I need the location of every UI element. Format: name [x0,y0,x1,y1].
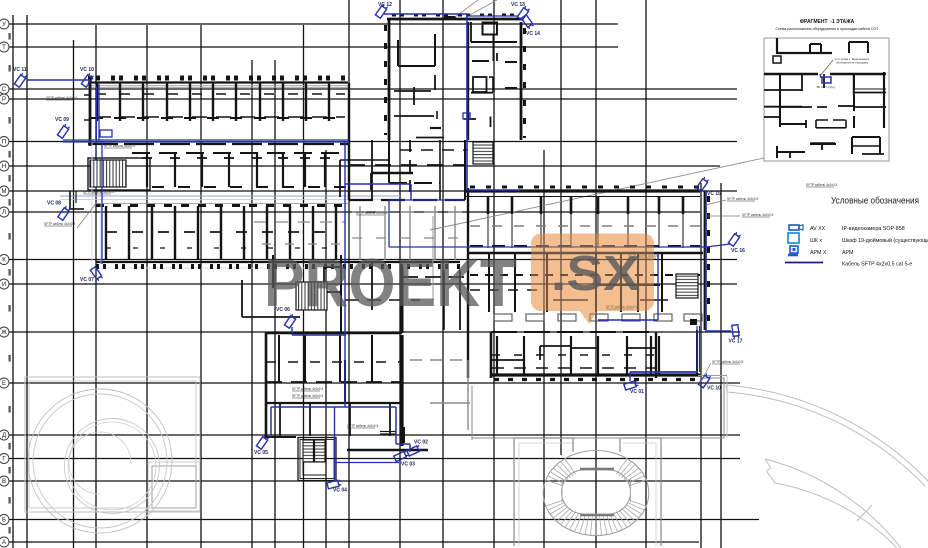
svg-text:SFTP кабель 4х2х0,5: SFTP кабель 4х2х0,5 [712,360,743,364]
svg-text:Б: Б [2,518,6,524]
svg-text:VC 12: VC 12 [378,2,392,8]
svg-text:VC 11: VC 11 [13,67,27,73]
svg-text:обобщения не передана: обобщения не передана [836,61,868,65]
svg-text:SFTP кабель 4х2х0,5: SFTP кабель 4х2х0,5 [742,213,773,217]
svg-text:ВК СОТ (сущ.): ВК СОТ (сущ.) [817,85,836,89]
svg-text:VC 04: VC 04 [333,488,347,494]
svg-text:VC 09: VC 09 [55,117,69,123]
svg-text:Схема расположения оборудовани: Схема расположения оборудования и прокла… [776,27,880,31]
svg-text:Л: Л [2,210,6,216]
svg-text:Е: Е [2,381,6,387]
svg-text:SFTP кабель 4х2х0,5: SFTP кабель 4х2х0,5 [356,211,387,215]
svg-text:Т: Т [2,45,6,51]
svg-text:SFTP кабель 4х2х0,5: SFTP кабель 4х2х0,5 [727,197,758,201]
svg-text:У: У [2,22,6,28]
svg-text:VC 01: VC 01 [630,389,644,395]
svg-text:Шкаф 19-дюймовый (существующий: Шкаф 19-дюймовый (существующий) [842,237,928,244]
svg-text:.SX: .SX [551,247,640,301]
svg-text:VC 05: VC 05 [254,450,268,456]
svg-text:AV ХХ: AV ХХ [810,226,826,232]
svg-text:SFTP кабель 4х2х0,5: SFTP кабель 4х2х0,5 [104,144,135,148]
svg-text:VC 10: VC 10 [80,67,94,73]
svg-text:VC 15: VC 15 [707,191,721,197]
svg-text:Условные обозначения: Условные обозначения [831,196,919,206]
svg-text:VC 13: VC 13 [511,2,525,8]
svg-text:SFTP кабель 4х2х0,5: SFTP кабель 4х2х0,5 [44,222,75,226]
svg-text:К: К [2,258,6,264]
svg-text:VC 07: VC 07 [80,277,94,283]
svg-text:VC 14: VC 14 [526,31,540,37]
svg-text:IP-видеокамера SOP-858: IP-видеокамера SOP-858 [842,226,905,232]
svg-text:Д: Д [2,433,6,439]
svg-text:Н: Н [2,164,6,170]
svg-text:Р: Р [2,97,6,103]
svg-text:Ж: Ж [1,330,7,336]
svg-text:VC 17: VC 17 [729,339,743,345]
svg-text:VC 08: VC 08 [47,201,61,207]
svg-text:SFTP кабель 4х2х0,5: SFTP кабель 4х2х0,5 [347,424,378,428]
svg-text:П: П [2,140,6,146]
svg-text:А: А [2,540,6,546]
svg-text:ФРАГМЕНТ -1 ЭТАЖА: ФРАГМЕНТ -1 ЭТАЖА [800,19,855,25]
svg-text:В: В [2,479,6,485]
svg-text:VC 03: VC 03 [401,462,415,468]
svg-text:SFTP кабель 4х2х0,5: SFTP кабель 4х2х0,5 [292,387,323,391]
svg-text:VC 10: VC 10 [707,386,721,392]
svg-text:PROEKT: PROEKT [264,245,517,321]
svg-text:С: С [2,87,7,93]
svg-text:SFTP кабель 4х2х0,5: SFTP кабель 4х2х0,5 [46,96,77,100]
svg-text:VC 02: VC 02 [414,440,428,446]
svg-text:Кабель SFTP 4х2х0,5 cat 5-е: Кабель SFTP 4х2х0,5 cat 5-е [842,262,912,268]
svg-text:М: М [2,189,7,195]
svg-text:VC 16: VC 16 [731,248,745,254]
svg-text:И: И [2,282,6,288]
svg-text:АРМ Х: АРМ Х [810,250,827,256]
svg-text:SFTP кабель 4х2х0,5: SFTP кабель 4х2х0,5 [292,394,323,398]
svg-text:SFTP кабель 4х2х0,5: SFTP кабель 4х2х0,5 [806,183,837,187]
svg-text:АРМ: АРМ [842,250,853,256]
svg-text:ШК х: ШК х [810,238,822,244]
svg-text:SFTP кабель 4х2х0,5: SFTP кабель 4х2х0,5 [83,190,114,194]
